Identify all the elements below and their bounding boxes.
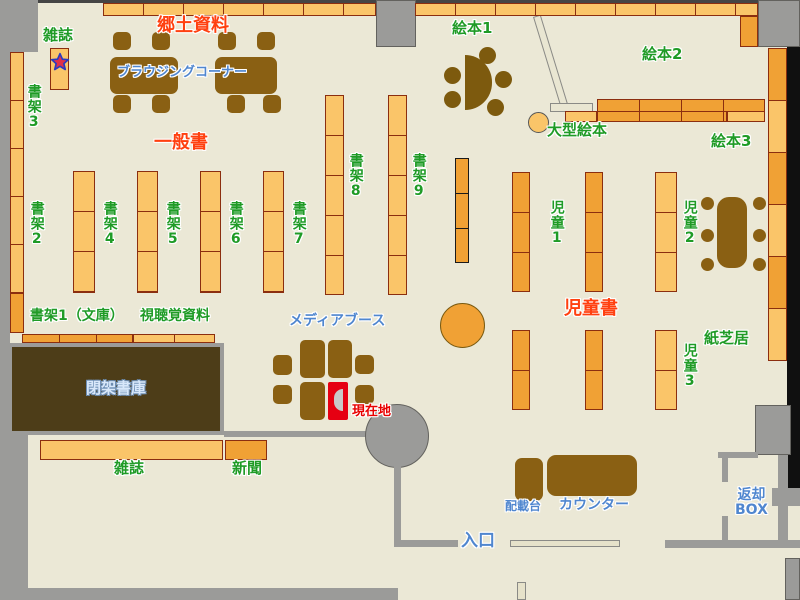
media-booth-seat	[273, 385, 292, 404]
large-picture-book-label: 大型絵本	[547, 123, 607, 139]
media-booth-carrel	[300, 340, 325, 378]
wall-returnbox-notch	[772, 488, 800, 506]
general-books-label: 一般書	[154, 134, 208, 153]
media-booth-seat	[273, 355, 292, 375]
local-history-label: 郷土資料	[157, 17, 229, 36]
shelf-top-row-right	[415, 3, 758, 16]
stool	[753, 197, 766, 210]
shelf-magazine-bottom	[40, 440, 223, 460]
return-box-line1: 返却	[737, 487, 765, 503]
picture-book2-label: 絵本2	[642, 47, 682, 63]
children2-label: 児童2	[682, 200, 697, 247]
wall-bottom-bar	[0, 588, 398, 600]
shelf-ehon-row-bottom-right	[727, 111, 765, 122]
picture-book1-label: 絵本1	[452, 21, 492, 37]
shelf-jido-upper-2	[585, 172, 603, 292]
stool	[701, 229, 714, 242]
media-booth-carrel	[300, 382, 325, 420]
shelf-col-6	[200, 171, 221, 293]
magazine-bottom-label: 雑誌	[114, 461, 144, 477]
shelf-jido-lower-3	[655, 330, 677, 410]
return-box-label: 返却 BOX	[735, 488, 768, 517]
chair	[263, 95, 281, 113]
counter-desk	[547, 455, 637, 496]
shelf2-label: 書架2	[29, 201, 44, 248]
chair	[152, 95, 170, 113]
shelf-jido-lower-1	[512, 330, 530, 410]
closed-stacks-inner: 閉架書庫	[12, 347, 220, 431]
shelf-av-row-dark	[22, 334, 133, 343]
large-picture-book-stand	[528, 112, 549, 133]
shelf1-bunko-label: 書架1（文庫）	[30, 309, 124, 324]
shelf7-label: 書架7	[291, 201, 306, 248]
shelf-jido-lower-2	[585, 330, 603, 410]
media-booth-seat	[355, 355, 374, 374]
kamishibai-label: 紙芝居	[704, 331, 749, 347]
stool	[487, 99, 504, 116]
stool	[479, 47, 496, 64]
stool	[701, 258, 714, 271]
distribution-stand-desk	[515, 458, 543, 501]
wall-entrance-vertical	[394, 466, 401, 546]
shelf4-label: 書架4	[102, 201, 117, 248]
shelf-col-7	[263, 171, 284, 293]
shelf-jido-upper-1	[512, 172, 530, 292]
wall-bottom-right-corner	[785, 558, 800, 600]
children1-label: 児童1	[549, 200, 564, 247]
shelf-top-row-left	[103, 3, 376, 16]
children-books-label: 児童書	[564, 300, 618, 319]
wall-returnbox-left-upper	[722, 452, 728, 482]
shelf-ehon-row-bottom-mid	[597, 111, 727, 122]
pillar-top	[376, 0, 416, 47]
magazine-top-label: 雑誌	[43, 28, 73, 44]
entrance-label: 入口	[461, 533, 495, 551]
shelf-col-8	[325, 95, 344, 295]
shelf-top-right-vertical	[740, 16, 758, 47]
round-table	[440, 303, 485, 348]
distribution-stand-label: 配載台	[505, 500, 541, 513]
star-icon	[50, 52, 70, 72]
shelf-col-5	[137, 171, 158, 293]
current-location-label: 現在地	[352, 405, 391, 419]
person-icon	[334, 389, 343, 411]
door-bar	[517, 582, 526, 600]
shelf8-label: 書架8	[348, 153, 363, 200]
wall-left-lower	[0, 415, 28, 600]
shelf-right-edge	[768, 48, 787, 361]
chair	[257, 32, 275, 50]
chair	[113, 95, 131, 113]
browsing-corner-label: ブラウジングコーナー	[117, 66, 247, 80]
av-materials-label: 視聴覚資料	[140, 309, 210, 324]
children-table	[717, 197, 747, 268]
wall-bottom-right	[665, 540, 800, 548]
stool	[701, 197, 714, 210]
chair	[227, 95, 245, 113]
wall-bottom-right-block	[755, 405, 791, 455]
wall-diagonal	[533, 15, 568, 108]
shelf-left-edge	[10, 52, 24, 293]
children3-label: 児童3	[682, 343, 697, 390]
wall-top-right-block	[758, 0, 800, 47]
media-booth-carrel	[328, 340, 352, 378]
entrance-gate-bar	[510, 540, 620, 547]
library-floor-map: 閉架書庫 雑誌 郷土資料 ブラウジングコーナー 書架3 一般書 書架2 書架4 …	[0, 0, 800, 600]
return-box-line2: BOX	[735, 502, 768, 518]
stool	[495, 71, 512, 88]
shelf5-label: 書架5	[165, 201, 180, 248]
shelf-jido-upper-3	[655, 172, 677, 292]
stool	[753, 229, 766, 242]
shelf6-label: 書架6	[228, 201, 243, 248]
stool	[444, 67, 461, 84]
shelf-col-4	[73, 171, 95, 293]
stool	[444, 91, 461, 108]
closed-stacks-room: 閉架書庫	[8, 343, 224, 435]
stool	[753, 258, 766, 271]
counter-label: カウンター	[559, 498, 629, 513]
closed-stacks-label: 閉架書庫	[86, 381, 146, 397]
media-booth-seat	[355, 385, 374, 404]
shelf3-label: 書架3	[26, 84, 41, 131]
shelf-col-9	[388, 95, 407, 295]
shelf-av-row-light	[133, 334, 215, 343]
newspaper-label: 新聞	[232, 461, 262, 477]
shelf-newspaper	[225, 440, 267, 460]
picture-book3-label: 絵本3	[711, 134, 751, 150]
shelf-left-edge-lower	[10, 293, 24, 333]
wall-mid-horizontal	[224, 431, 367, 437]
shelf9-label: 書架9	[411, 153, 426, 200]
current-location-marker	[328, 382, 348, 420]
wall-entrance-horizontal	[394, 540, 458, 547]
shelf-mini	[455, 158, 469, 263]
media-booth-label: メディアブース	[289, 314, 385, 329]
chair	[113, 32, 131, 50]
